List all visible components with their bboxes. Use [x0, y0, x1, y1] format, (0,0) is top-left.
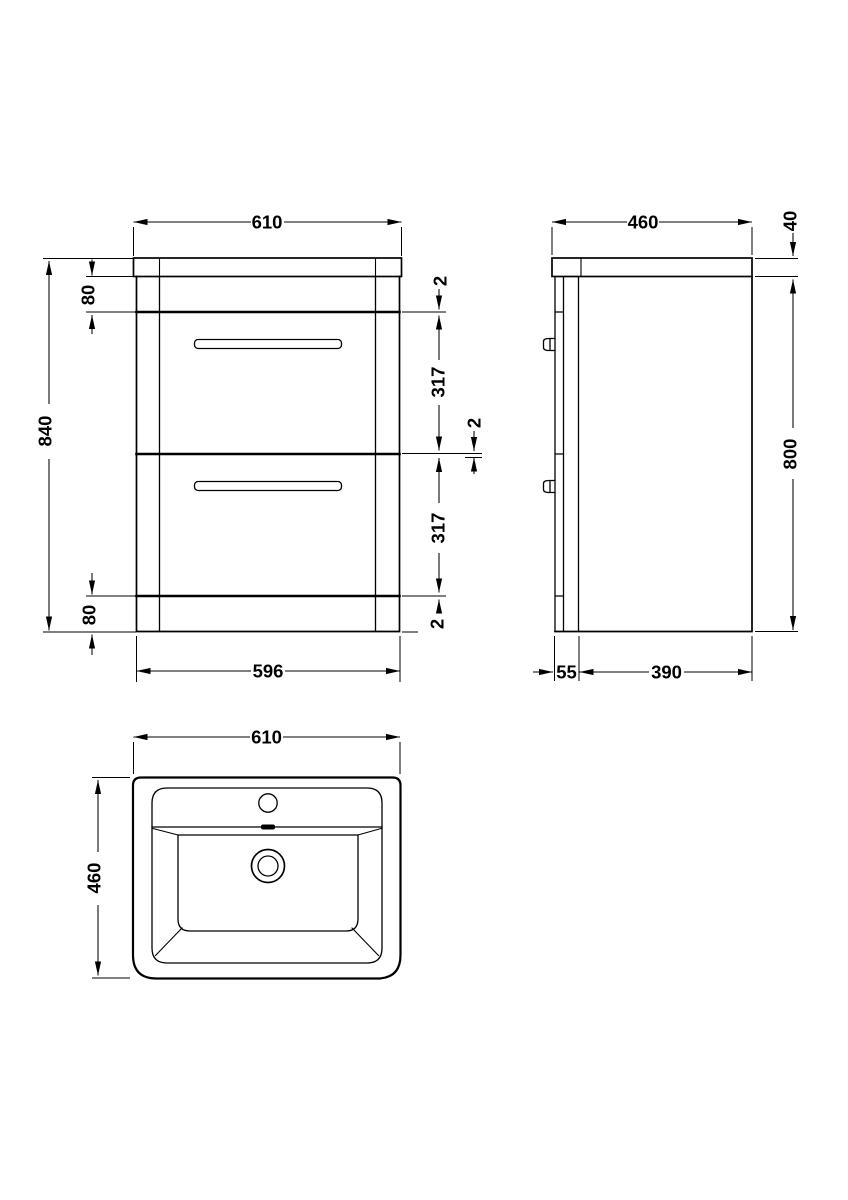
dim-front-gap-top: 2: [430, 276, 451, 360]
dim-front-gap-top-label: 2: [430, 276, 451, 286]
dim-front-drawer-lower: 317: [428, 458, 449, 593]
front-worktop-outline: [134, 258, 402, 277]
dim-front-gap-bottom-label: 2: [427, 619, 448, 629]
overflow-slot: [261, 825, 275, 830]
dim-front-top-rail-label: 80: [78, 285, 99, 306]
dim-front-width-top: 610: [134, 212, 402, 233]
dim-side-depth-top-label: 460: [628, 212, 659, 233]
dim-side-body-depth-label: 390: [651, 662, 682, 683]
front-view: 610 840 80 2 317 2: [35, 212, 485, 683]
dim-plan-width: 610: [134, 727, 401, 748]
dim-side-body-height-label: 800: [780, 439, 801, 470]
tap-hole: [259, 794, 277, 812]
side-view: 460 40 800 55 390: [533, 211, 801, 683]
dim-side-body-depth: 390: [580, 662, 753, 683]
dim-front-bottom-rail-label: 80: [79, 605, 100, 626]
dim-front-gap-middle: 2: [464, 418, 485, 474]
front-worktop-edge-ticks: [160, 258, 376, 277]
basin-outer-outline: [133, 778, 401, 979]
drain-outer-ring: [252, 850, 285, 883]
dim-front-body-width-label: 596: [253, 661, 284, 682]
vanity-technical-drawing: 610 840 80 2 317 2: [0, 0, 848, 1200]
side-worktop-outline: [552, 258, 752, 277]
dim-plan-depth: 460: [84, 780, 105, 976]
dim-front-overall-height-label: 840: [35, 416, 56, 447]
drawer-handle-slot-upper: [195, 340, 342, 349]
dim-front-drawer-upper-label: 317: [428, 367, 449, 398]
drawer-handle-slot-lower: [195, 482, 342, 491]
dim-side-front-projection-label: 55: [556, 662, 577, 683]
drain-inner-ring: [258, 856, 278, 876]
side-handle-profile-upper: [544, 339, 556, 351]
front-drawer-gap-lines: [137, 312, 400, 596]
side-body-outline: [555, 277, 752, 632]
dim-front-bottom-rail: 80: [79, 573, 100, 655]
dim-side-worktop-thickness-label: 40: [780, 211, 801, 232]
dim-front-drawer-lower-label: 317: [428, 513, 449, 544]
dim-side-depth-top: 460: [552, 212, 752, 233]
dim-side-worktop-thickness: 40: [780, 211, 801, 256]
dim-front-gap-middle-label: 2: [464, 418, 485, 428]
plan-view: 610 460: [84, 727, 401, 979]
dim-plan-depth-label: 460: [84, 863, 105, 894]
side-drawer-front-strip: [555, 277, 564, 632]
side-handle-profile-lower: [544, 481, 556, 493]
technical-drawing-page: 610 840 80 2 317 2: [0, 0, 848, 1200]
side-extension-lines: [552, 227, 798, 681]
dim-front-gap-bottom: 2: [427, 600, 448, 630]
dim-front-width-top-label: 610: [252, 212, 283, 233]
dim-front-body-width: 596: [137, 661, 401, 682]
dim-front-drawer-upper: 317: [428, 367, 449, 451]
dim-front-top-rail: 80: [78, 260, 99, 335]
dim-plan-width-label: 610: [251, 727, 282, 748]
dim-front-overall-height: 840: [35, 261, 56, 631]
bowl-corner-diagonals: [156, 928, 379, 956]
dim-side-body-height: 800: [780, 280, 801, 631]
